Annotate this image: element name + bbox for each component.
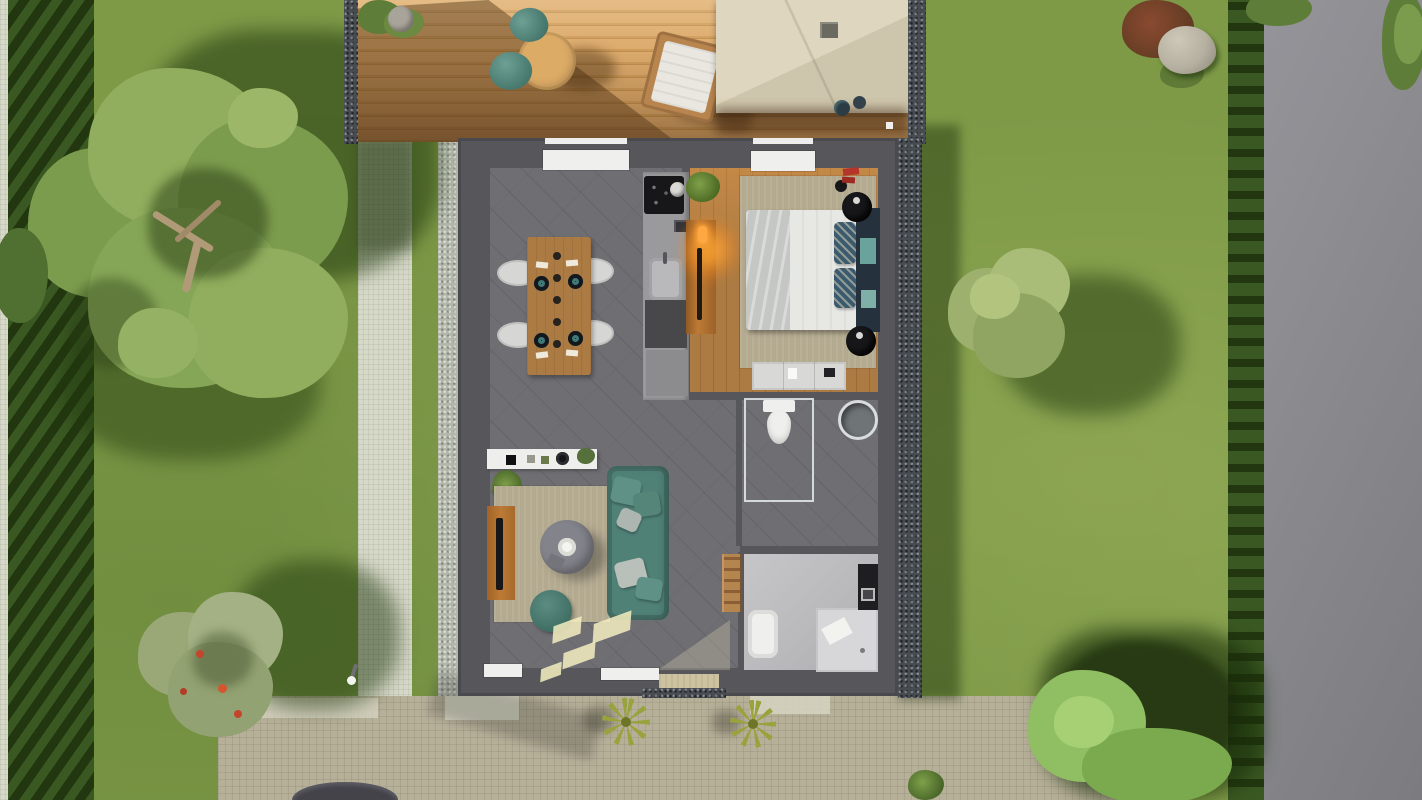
headboard — [856, 208, 880, 332]
vanity-sink — [861, 588, 875, 601]
west-gravel-strip — [438, 140, 458, 696]
fruit — [180, 688, 187, 695]
wall — [740, 546, 878, 554]
palm-plant — [602, 698, 650, 746]
fruit-tree — [138, 592, 298, 752]
sideboard-decor — [541, 456, 549, 464]
nightstand-decor — [853, 197, 860, 204]
bathtub — [748, 610, 778, 658]
tree-canopy-corner — [1394, 4, 1422, 64]
window-sill — [545, 138, 627, 144]
base-cabinet — [646, 350, 688, 396]
lamp — [698, 226, 707, 243]
bed-pillow — [834, 222, 856, 264]
shower-tray — [816, 608, 878, 672]
wooden-deck — [356, 0, 908, 142]
bed-pillow — [834, 268, 856, 308]
faucet — [663, 252, 667, 264]
fruit — [196, 650, 204, 658]
lounger-cushion — [650, 40, 719, 114]
dresser-item — [824, 368, 835, 377]
place-setting — [568, 331, 583, 346]
sideboard-decor-box — [503, 452, 516, 465]
palm-center — [748, 719, 758, 729]
planter-pot — [388, 6, 414, 32]
bathroom-vanity — [858, 564, 878, 610]
road — [1262, 0, 1422, 800]
palm-center — [621, 717, 631, 727]
headboard-panel — [860, 238, 876, 264]
shower-drain — [860, 648, 865, 653]
place-setting — [534, 333, 549, 348]
wardrobe-handle — [697, 248, 702, 320]
washbasin — [838, 400, 878, 440]
nightstand-decor — [856, 332, 863, 339]
small-white-item — [886, 122, 893, 129]
pergola-canopy — [716, 0, 908, 113]
nightstand — [846, 326, 876, 356]
gravel-border-east — [898, 138, 922, 698]
place-setting — [534, 276, 549, 291]
window-sill — [753, 138, 813, 144]
towel-ladder — [722, 554, 742, 612]
garden-floorplan-render — [0, 0, 1422, 800]
bollard-globe — [347, 676, 356, 685]
deck-plant-pot — [853, 96, 866, 109]
napkin — [566, 259, 578, 266]
pot-on-stove — [670, 182, 685, 197]
pergola-shadow — [716, 108, 908, 134]
sofa-cushion — [634, 576, 663, 602]
trees-bottom-right — [1020, 640, 1270, 800]
window-sill — [484, 664, 522, 677]
window — [543, 150, 629, 170]
table-runner-dot — [553, 318, 561, 326]
table-runner-dot — [553, 274, 561, 282]
tv — [496, 518, 503, 590]
large-tree — [28, 28, 388, 448]
window — [751, 151, 815, 171]
house — [458, 138, 898, 696]
table-runner-dot — [553, 252, 561, 260]
deck-plant-pot — [834, 100, 850, 116]
table-runner-dot — [553, 340, 561, 348]
nightstand — [842, 192, 872, 222]
window-sill — [601, 668, 659, 680]
wall — [736, 392, 742, 546]
fruit — [218, 684, 227, 693]
table-runner-dot — [553, 296, 561, 304]
dresser-paper — [788, 368, 797, 379]
gravel-border — [908, 0, 926, 144]
base-cabinet — [645, 300, 687, 348]
place-setting — [568, 274, 583, 289]
fruit — [234, 710, 242, 718]
lamp-glow — [680, 212, 738, 288]
bowl-on-table — [558, 538, 576, 556]
napkin — [566, 349, 578, 356]
garden-tree-right — [948, 238, 1078, 378]
kitchen-sink — [649, 258, 682, 300]
palm-plant — [730, 700, 776, 748]
headboard-panel — [861, 290, 876, 308]
pergola-vent — [820, 22, 838, 38]
door-gravel-strip — [642, 688, 726, 698]
napkin — [536, 261, 549, 268]
record-player — [556, 452, 569, 465]
rock — [1158, 26, 1216, 74]
duvet — [746, 210, 790, 330]
sideboard-decor — [527, 455, 535, 463]
red-decor — [842, 177, 855, 184]
